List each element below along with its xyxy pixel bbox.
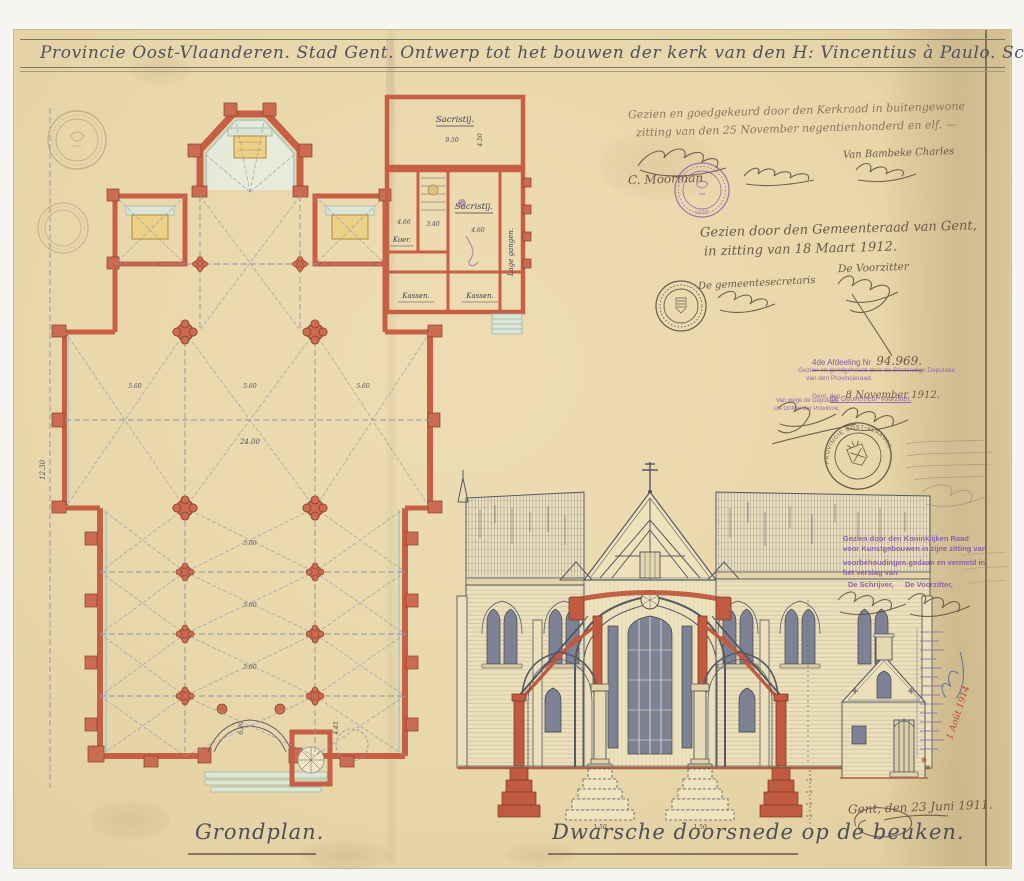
svg-text:5.60: 5.60 — [243, 540, 257, 547]
red-footing-right — [760, 768, 802, 817]
apse-pier — [293, 186, 308, 197]
svg-text:4.66: 4.66 — [396, 219, 411, 226]
svg-text:5.60: 5.60 — [243, 602, 257, 609]
svg-text:Koer.: Koer. — [392, 236, 411, 244]
cross-section-drawing: 1.50 1.50 — [450, 450, 970, 830]
deputatie-line1: Gezien en goedgekeurd door de Bestendige… — [798, 367, 955, 374]
apse-buttress — [188, 144, 201, 157]
gemeenteraad-chairman: De Voorzitter — [838, 261, 909, 275]
red-respond-left — [514, 701, 524, 766]
narthex-column — [217, 704, 227, 714]
corner-pinnacle — [458, 470, 468, 502]
title-rule-bottom-2 — [20, 71, 1005, 72]
plan-caption-rule — [188, 853, 316, 855]
footing-left — [566, 769, 634, 820]
svg-text:5.60: 5.60 — [356, 383, 370, 390]
portal-niche — [208, 720, 292, 752]
annex-fixture — [428, 185, 438, 195]
svg-text:5.60: 5.60 — [243, 383, 257, 390]
svg-text:4.50: 4.50 — [477, 133, 484, 148]
annex-window — [852, 726, 866, 744]
drawing-title: Provincie Oost-Vlaanderen. Stad Gent. On… — [40, 43, 984, 63]
red-respond-cap — [512, 694, 526, 701]
depth-ticks — [806, 770, 814, 824]
high-altar — [234, 136, 266, 158]
fold-line — [985, 30, 987, 866]
ink-scribble — [466, 236, 478, 266]
cross-finial — [642, 462, 658, 492]
section-caption-rule — [548, 853, 798, 855]
svg-text:5.60: 5.60 — [243, 664, 257, 671]
ink-blot — [458, 199, 466, 207]
svg-text:3.40: 3.40 — [426, 221, 440, 228]
konraad-line3: voorbehoudingen gedaan en vermeld in — [843, 558, 985, 567]
side-lancet — [608, 626, 618, 748]
roof-left — [466, 492, 584, 584]
svg-text:6.90: 6.90 — [238, 721, 245, 735]
plan-caption: Grondplan. — [195, 820, 324, 844]
konraad-voorzitter: De Voorzitter, — [905, 580, 953, 589]
apse-buttress — [224, 103, 237, 116]
svg-text:Lage gangen.: Lage gangen. — [507, 228, 515, 277]
annex-sacristy-top — [387, 97, 523, 167]
konraad-line1: Gezien door den Koninklijken Raad — [843, 534, 969, 543]
svg-text:4.45: 4.45 — [333, 721, 340, 736]
signature-moorman: C. Moorman — [628, 171, 704, 188]
deputatie-left2: De Griffier der Provincie; — [774, 406, 840, 412]
dim-overall: 12.30 — [39, 459, 47, 480]
chimney — [876, 634, 892, 660]
red-respond-right — [776, 701, 786, 766]
deputatie-number: 94.969. — [876, 354, 922, 368]
konraad-line2: voor Kunstgebouwen in zijne zitting van — [843, 544, 986, 553]
red-footing-left — [498, 768, 540, 817]
konraad-schrijver: De Schrijver, — [848, 580, 893, 589]
svg-text:24.00: 24.00 — [239, 438, 261, 446]
svg-text:9.50: 9.50 — [445, 137, 459, 144]
chapel-altar-right — [332, 215, 368, 239]
apse-pier — [192, 186, 207, 197]
deputatie-left1: Van wege de Deputatie: — [776, 398, 840, 404]
chapel-altar-left — [132, 215, 168, 239]
konraad-line4: het verslag van — [843, 568, 898, 577]
gable-lancet — [877, 671, 891, 698]
svg-text:Kassen.: Kassen. — [465, 292, 493, 300]
title-rule-top — [20, 39, 1005, 40]
svg-text:5.60: 5.60 — [128, 383, 142, 390]
title-rule-bottom — [20, 67, 1005, 68]
footing-right — [666, 769, 734, 820]
vault-ribs — [65, 196, 430, 756]
deputatie-line2: van den Provincieraad. — [806, 375, 873, 382]
deputatie-chairman: De Gouverneur-Voorzitter, — [830, 396, 911, 403]
svg-text:Kassen.: Kassen. — [401, 292, 429, 300]
scanned-architectural-drawing: Provincie Oost-Vlaanderen. Stad Gent. On… — [0, 0, 1024, 881]
deputatie-heading-label: 4de Afdeeling Nr — [812, 358, 871, 367]
side-lancet — [682, 626, 692, 748]
svg-text:Sacristij.: Sacristij. — [436, 115, 474, 125]
apse-buttress — [263, 103, 276, 116]
apse-buttress — [299, 144, 312, 157]
svg-text:4.60: 4.60 — [470, 227, 485, 234]
section-caption: Dwarsche doorsnede op de beuken. — [552, 820, 965, 844]
altar-steps — [228, 128, 272, 136]
cornice-left — [466, 578, 584, 585]
